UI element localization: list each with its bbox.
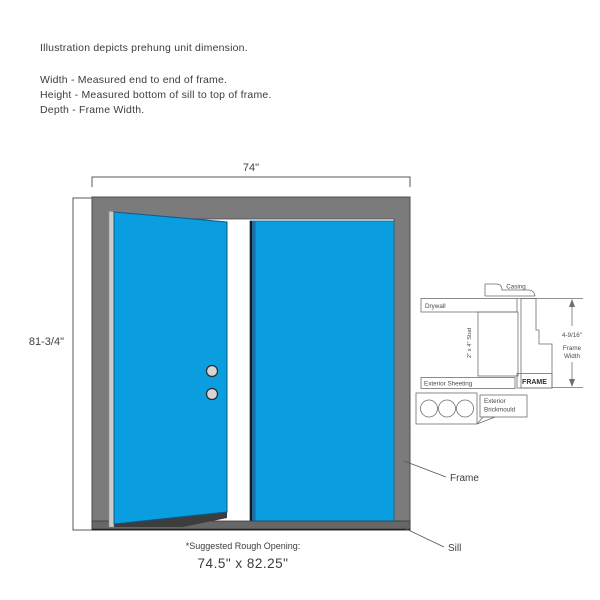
frame-width-dim-label: 4-9/16" bbox=[562, 332, 582, 339]
door-diagram: 74" 81-3/4" Frame Sill Casing Drywall 2"… bbox=[0, 0, 600, 600]
frame-width-dim-sub1: Frame bbox=[563, 345, 582, 352]
stud-box bbox=[478, 312, 518, 376]
height-dimension-label: 81-3/4" bbox=[29, 336, 64, 348]
width-dimension-line bbox=[92, 177, 410, 187]
right-door-edge-shade bbox=[252, 221, 256, 522]
brickmould-label-line1: Exterior bbox=[484, 398, 506, 405]
brickmould-callout-tail bbox=[477, 417, 495, 424]
frame-section-label: FRAME bbox=[522, 379, 547, 386]
right-door-panel bbox=[250, 221, 394, 522]
width-dimension-label: 74" bbox=[243, 162, 259, 174]
casing-label: Casing bbox=[506, 284, 526, 291]
exterior-sheeting-label: Exterior Sheeting bbox=[424, 381, 473, 388]
frame-callout-label: Frame bbox=[450, 473, 479, 484]
right-door-edge-dark bbox=[250, 221, 252, 522]
brickmould-circle-2 bbox=[439, 400, 456, 417]
brickmould-circle-3 bbox=[457, 400, 474, 417]
sill-callout-label: Sill bbox=[448, 543, 461, 554]
dim-arrow-up bbox=[569, 299, 575, 307]
rough-opening-label: *Suggested Rough Opening: bbox=[123, 541, 363, 551]
drywall-label: Drywall bbox=[425, 303, 446, 310]
rough-opening-value: 74.5" x 82.25" bbox=[123, 556, 363, 571]
sill-leader-line bbox=[402, 527, 444, 547]
frame-profile bbox=[521, 299, 552, 389]
stud-label: 2" x 4" Stud bbox=[467, 328, 473, 358]
brickmould-label-line2: Brickmould bbox=[484, 407, 516, 414]
frame-width-dim-sub2: Width bbox=[564, 353, 581, 360]
deadbolt-knob bbox=[207, 366, 218, 377]
left-door-hinge-strip bbox=[109, 211, 114, 527]
door-knob bbox=[207, 389, 218, 400]
dim-arrow-down bbox=[569, 379, 575, 387]
brickmould-circle-1 bbox=[421, 400, 438, 417]
brickmould-profile-box bbox=[416, 393, 477, 424]
